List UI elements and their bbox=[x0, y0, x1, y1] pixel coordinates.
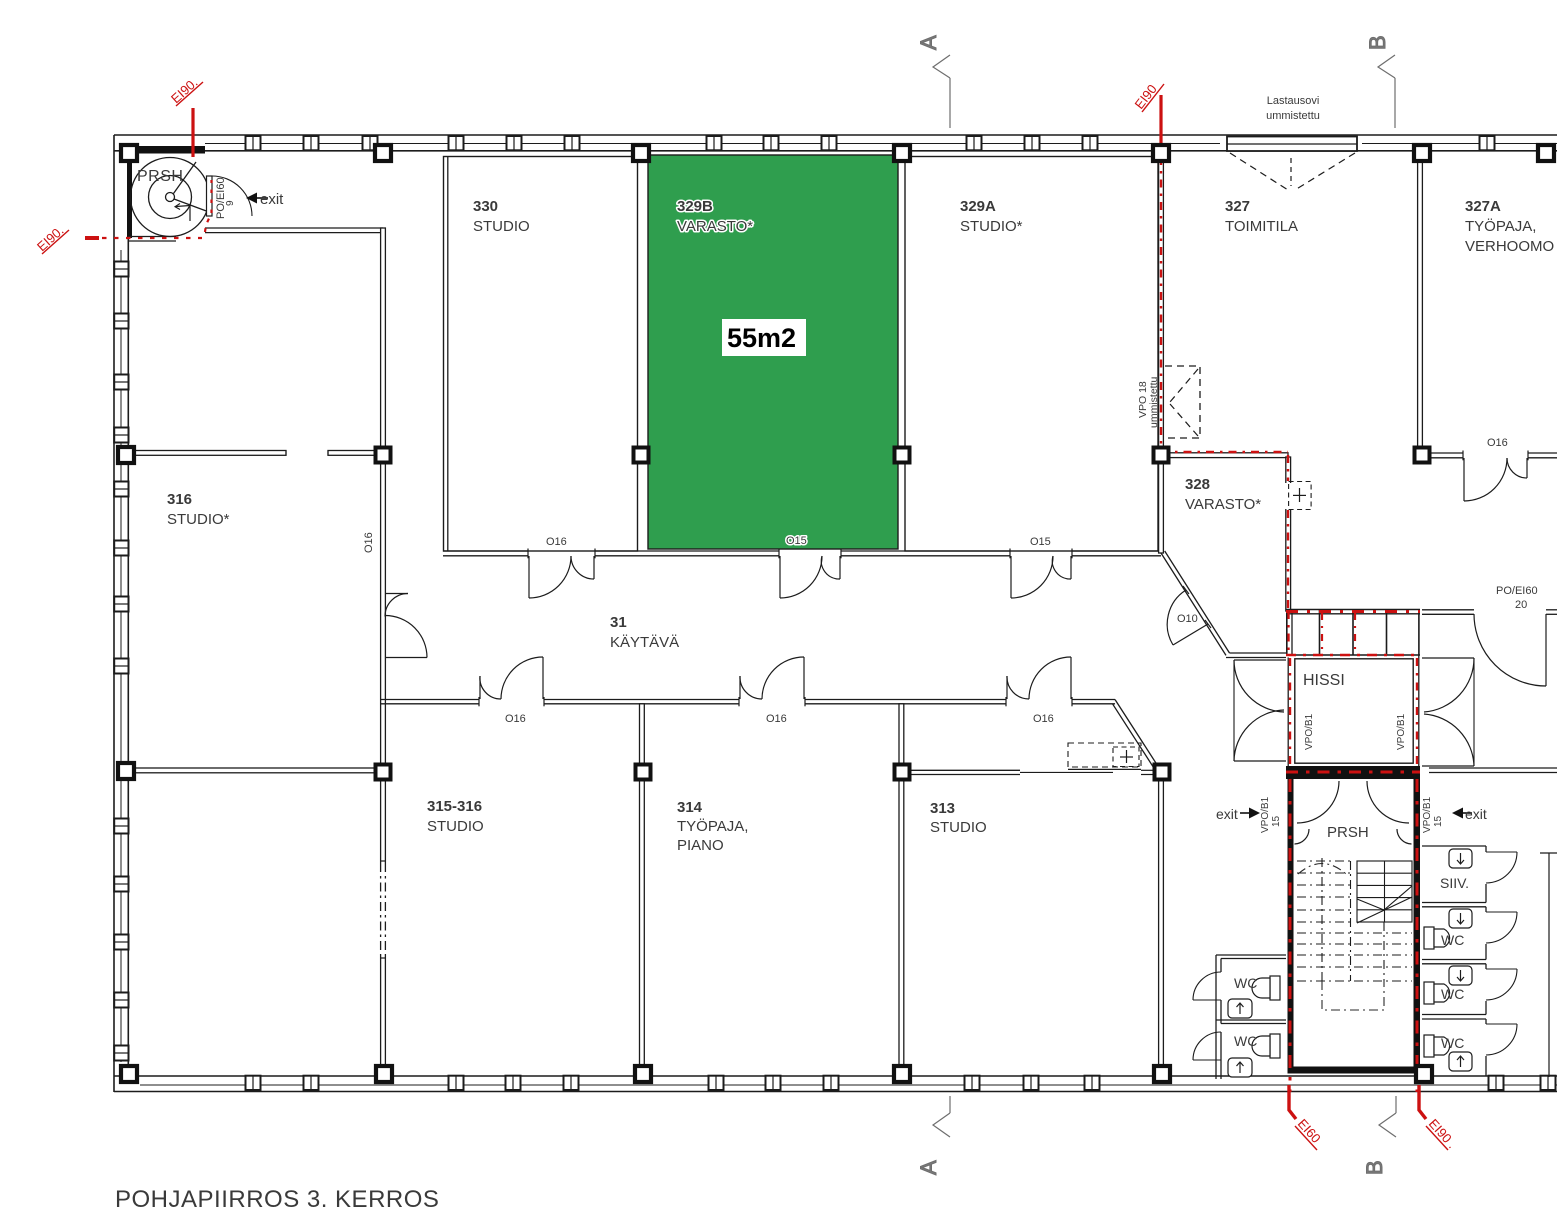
svg-text:O15: O15 bbox=[1030, 536, 1051, 548]
svg-text:15: 15 bbox=[1433, 815, 1444, 827]
svg-text:STUDIO: STUDIO bbox=[427, 818, 484, 835]
svg-text:ummistettu: ummistettu bbox=[1266, 110, 1320, 122]
svg-text:PIANO: PIANO bbox=[677, 837, 724, 854]
svg-text:313: 313 bbox=[930, 800, 955, 817]
svg-text:O15: O15 bbox=[786, 535, 807, 547]
svg-text:B: B bbox=[1365, 35, 1390, 50]
svg-text:TYÖPAJA,: TYÖPAJA, bbox=[1465, 217, 1536, 235]
svg-text:STUDIO*: STUDIO* bbox=[960, 218, 1023, 235]
svg-text:O16: O16 bbox=[1487, 437, 1508, 449]
svg-text:328: 328 bbox=[1185, 476, 1210, 493]
svg-text:330: 330 bbox=[473, 198, 498, 215]
svg-text:HISSI: HISSI bbox=[1303, 672, 1345, 689]
svg-text:O16: O16 bbox=[1033, 713, 1054, 725]
svg-text:327A: 327A bbox=[1465, 198, 1501, 215]
svg-text:VPO/B1: VPO/B1 bbox=[1260, 796, 1271, 833]
svg-text:WC: WC bbox=[1441, 986, 1464, 1002]
svg-text:329A: 329A bbox=[960, 198, 996, 215]
svg-text:O16: O16 bbox=[766, 713, 787, 725]
svg-text:ummistettu: ummistettu bbox=[1148, 376, 1160, 428]
svg-text:VARASTO*: VARASTO* bbox=[1185, 496, 1261, 513]
svg-text:TOIMITILA: TOIMITILA bbox=[1225, 218, 1298, 235]
svg-text:VPO/B1: VPO/B1 bbox=[1396, 713, 1407, 750]
svg-text:15: 15 bbox=[1271, 815, 1282, 827]
svg-text:WC: WC bbox=[1234, 1033, 1257, 1049]
svg-text:31: 31 bbox=[610, 614, 627, 631]
svg-text:20: 20 bbox=[1515, 599, 1527, 611]
svg-text:O16: O16 bbox=[505, 713, 526, 725]
svg-text:9: 9 bbox=[225, 200, 236, 206]
svg-text:STUDIO: STUDIO bbox=[930, 819, 987, 836]
svg-text:exit: exit bbox=[1465, 806, 1487, 822]
svg-text:55m2: 55m2 bbox=[727, 323, 796, 353]
svg-text:329B: 329B bbox=[677, 198, 713, 215]
svg-text:PRSH: PRSH bbox=[1327, 824, 1369, 841]
svg-text:exit: exit bbox=[1216, 806, 1238, 822]
svg-text:327: 327 bbox=[1225, 198, 1250, 215]
svg-text:WC: WC bbox=[1234, 975, 1257, 991]
svg-text:STUDIO*: STUDIO* bbox=[167, 511, 230, 528]
svg-text:A: A bbox=[916, 35, 941, 50]
svg-text:O16: O16 bbox=[546, 536, 567, 548]
svg-text:KÄYTÄVÄ: KÄYTÄVÄ bbox=[610, 634, 679, 651]
svg-text:VPO/B1: VPO/B1 bbox=[1304, 713, 1315, 750]
svg-text:Lastausovi: Lastausovi bbox=[1267, 95, 1320, 107]
svg-text:O16: O16 bbox=[363, 532, 375, 553]
svg-text:A: A bbox=[916, 1160, 941, 1175]
svg-text:B: B bbox=[1362, 1160, 1387, 1175]
svg-text:315-316: 315-316 bbox=[427, 798, 482, 815]
svg-text:WC: WC bbox=[1441, 932, 1464, 948]
svg-text:PO/EI60: PO/EI60 bbox=[215, 177, 227, 219]
svg-text:316: 316 bbox=[167, 491, 192, 508]
svg-text:VERHOOMO: VERHOOMO bbox=[1465, 238, 1554, 255]
svg-text:STUDIO: STUDIO bbox=[473, 218, 530, 235]
svg-text:PO/EI60: PO/EI60 bbox=[1496, 585, 1538, 597]
svg-text:SIIV.: SIIV. bbox=[1440, 875, 1469, 891]
svg-text:POHJAPIIRROS 3. KERROS: POHJAPIIRROS 3. KERROS bbox=[115, 1186, 439, 1213]
svg-text:VPO/B1: VPO/B1 bbox=[1422, 796, 1433, 833]
svg-text:TYÖPAJA,: TYÖPAJA, bbox=[677, 817, 748, 835]
svg-text:314: 314 bbox=[677, 799, 703, 816]
svg-text:VARASTO*: VARASTO* bbox=[677, 218, 753, 235]
svg-text:exit: exit bbox=[260, 191, 284, 208]
svg-text:PRSH: PRSH bbox=[137, 168, 183, 185]
svg-text:WC: WC bbox=[1441, 1035, 1464, 1051]
svg-text:O10: O10 bbox=[1177, 613, 1198, 625]
